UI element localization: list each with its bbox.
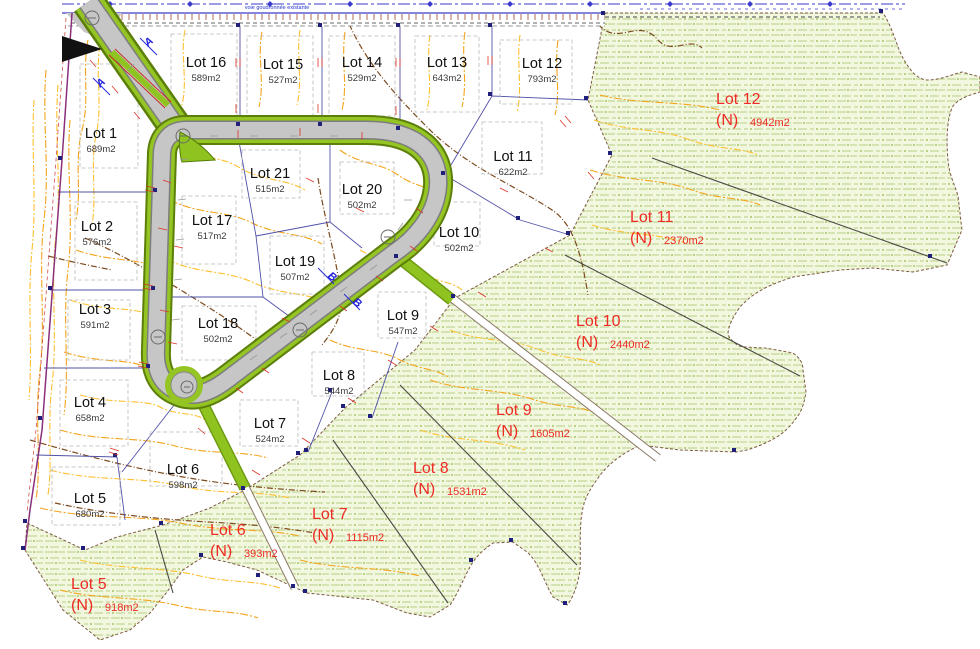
lot-area-4: 658m2 xyxy=(75,413,104,424)
lot-label-14: Lot 14 xyxy=(342,55,382,71)
lot-area-10: 502m2 xyxy=(444,243,473,254)
new-lot-label-3: Lot 9 xyxy=(496,402,532,419)
lot-area-19: 507m2 xyxy=(280,272,309,283)
new-lot-area-6: 393m2 xyxy=(244,548,278,560)
new-lot-n-5: (N) xyxy=(312,527,334,544)
lot-area-13: 643m2 xyxy=(432,73,461,84)
new-lot-n-2: (N) xyxy=(576,334,598,351)
new-lot-area-2: 2440m2 xyxy=(610,339,650,351)
lot-label-1: Lot 1 xyxy=(85,126,117,142)
new-lot-n-6: (N) xyxy=(210,543,232,560)
lot-label-20: Lot 20 xyxy=(342,182,382,198)
new-lot-area-7: 918m2 xyxy=(105,602,139,614)
new-lot-label-1: Lot 11 xyxy=(630,209,673,226)
lot-area-14: 529m2 xyxy=(347,73,376,84)
lot-label-3: Lot 3 xyxy=(79,302,111,318)
lot-label-8: Lot 8 xyxy=(323,368,355,384)
lot-label-6: Lot 6 xyxy=(167,462,199,478)
lot-label-19: Lot 19 xyxy=(275,254,315,270)
lot-area-17: 517m2 xyxy=(197,231,226,242)
new-lot-area-3: 1605m2 xyxy=(530,428,570,440)
lot-label-15: Lot 15 xyxy=(263,57,303,73)
lot-area-12: 793m2 xyxy=(527,74,556,85)
lot-area-9: 547m2 xyxy=(388,326,417,337)
new-lot-label-6: Lot 6 xyxy=(210,522,246,539)
lot-label-21: Lot 21 xyxy=(250,166,290,182)
lot-label-10: Lot 10 xyxy=(439,225,479,241)
new-lot-area-5: 1115m2 xyxy=(346,532,384,544)
new-lot-n-1: (N) xyxy=(630,230,652,247)
new-lot-n-0: (N) xyxy=(716,112,738,129)
lot-area-8: 544m2 xyxy=(324,386,353,397)
new-lot-n-3: (N) xyxy=(496,423,518,440)
lot-area-6: 598m2 xyxy=(168,480,197,491)
road-note-label: voie goudronnée existante xyxy=(245,5,310,11)
lot-label-5: Lot 5 xyxy=(74,491,106,507)
new-lot-n-4: (N) xyxy=(413,481,435,498)
lot-area-20: 502m2 xyxy=(347,200,376,211)
lot-area-3: 591m2 xyxy=(80,320,109,331)
new-lot-area-0: 4942m2 xyxy=(750,117,790,129)
lot-area-16: 589m2 xyxy=(191,73,220,84)
lot-area-1: 689m2 xyxy=(86,144,115,155)
lot-label-12: Lot 12 xyxy=(522,56,562,72)
lot-label-2: Lot 2 xyxy=(81,219,113,235)
new-lot-label-0: Lot 12 xyxy=(716,91,761,108)
lot-label-7: Lot 7 xyxy=(254,416,286,432)
new-lot-area-1: 2370m2 xyxy=(664,235,704,247)
lot-label-9: Lot 9 xyxy=(387,308,419,324)
lot-area-21: 515m2 xyxy=(255,184,284,195)
new-lot-n-7: (N) xyxy=(71,597,93,614)
lot-area-2: 576m2 xyxy=(82,237,111,248)
lot-area-5: 680m2 xyxy=(75,509,104,520)
subdivision-plan-canvas: voie goudronnée existante AABB Lot 1689m… xyxy=(0,0,980,649)
new-lot-label-2: Lot 10 xyxy=(576,313,621,330)
new-lot-label-5: Lot 7 xyxy=(312,506,348,523)
lot-label-17: Lot 17 xyxy=(192,213,232,229)
lot-area-11: 622m2 xyxy=(498,167,527,178)
lot-label-4: Lot 4 xyxy=(74,395,106,411)
lot-label-16: Lot 16 xyxy=(186,55,226,71)
lot-label-18: Lot 18 xyxy=(198,316,238,332)
lot-label-13: Lot 13 xyxy=(427,55,467,71)
new-lot-area-4: 1531m2 xyxy=(447,486,487,498)
lot-area-15: 527m2 xyxy=(268,75,297,86)
new-lot-label-4: Lot 8 xyxy=(413,460,449,477)
lot-area-18: 502m2 xyxy=(203,334,232,345)
new-lot-label-7: Lot 5 xyxy=(71,576,107,593)
site-plan-svg: voie goudronnée existante AABB Lot 1689m… xyxy=(0,0,980,649)
lot-area-7: 524m2 xyxy=(255,434,284,445)
lot-label-11: Lot 11 xyxy=(493,149,532,165)
